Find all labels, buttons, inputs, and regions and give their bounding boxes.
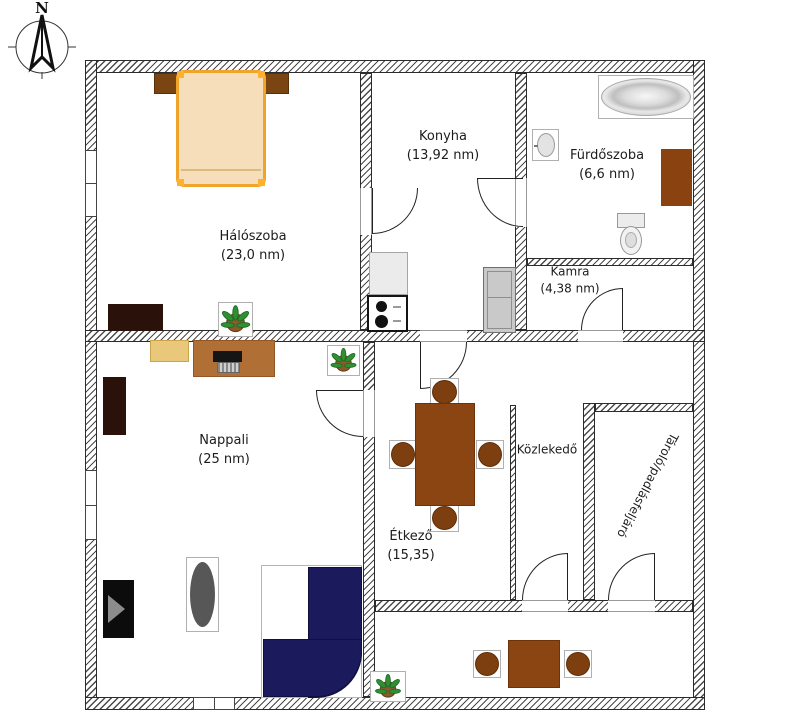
terrace-table: [508, 640, 560, 688]
wall-corridor-left: [510, 405, 516, 600]
dining-chair: [430, 378, 459, 406]
window-bedroom: [85, 150, 97, 217]
opening-bedroom-kitchen: [360, 188, 372, 235]
room-label-bathroom: Fürdőszoba (6,6 nm): [570, 147, 644, 185]
window-livingroom: [85, 470, 97, 540]
room-label-corridor: Közlekedő: [517, 441, 578, 458]
wall-storage-top: [595, 403, 693, 412]
bedroom-rug: [108, 304, 163, 331]
opening-living-dining: [363, 390, 375, 437]
door-living-dining: [316, 390, 363, 437]
bathroom-cabinet: [661, 149, 692, 206]
wall-corridor-storage: [583, 403, 595, 600]
terrace-chair: [564, 650, 592, 678]
bathtub: [598, 75, 694, 119]
room-label-bedroom: Hálószoba (23,0 nm): [219, 228, 286, 266]
bed: [176, 70, 266, 187]
room-label-livingroom: Nappali (25 nm): [198, 432, 250, 470]
opening-corridor-terrace: [522, 600, 568, 612]
window-livingroom-south: [193, 697, 235, 710]
opening-pantry: [578, 330, 623, 342]
opening-storage-terrace: [608, 600, 655, 612]
dining-chair: [476, 440, 504, 469]
tv: [103, 580, 134, 638]
wall-outer-right: [693, 60, 705, 710]
dining-table: [415, 403, 475, 506]
door-kitchen-bathroom: [477, 178, 523, 227]
potted-plant-icon: [370, 671, 406, 702]
compass-n-label: N: [35, 0, 49, 17]
door-bedroom-kitchen: [372, 188, 418, 234]
stove: [367, 295, 408, 332]
room-label-storage: Tároló/padlásfeljáró: [612, 429, 682, 540]
terrace-chair: [473, 650, 501, 678]
door-storage-terrace: [608, 553, 655, 600]
door-corridor-terrace: [522, 553, 568, 600]
opening-kitchen-dining: [420, 330, 467, 342]
compass-icon: N: [4, 0, 82, 84]
sink: [532, 129, 559, 161]
toilet: [616, 213, 644, 259]
storage-cabinet: [103, 377, 126, 435]
nightstand-right: [262, 73, 289, 94]
room-label-pantry: Kamra (4,38 nm): [540, 264, 599, 299]
corner-sofa: [261, 565, 362, 698]
sideboard: [193, 340, 275, 377]
coffee-table: [186, 557, 219, 632]
fridge: [483, 267, 516, 333]
kitchen-counter: [369, 252, 408, 295]
potted-plant-icon: [327, 345, 360, 376]
dining-chair: [389, 440, 417, 469]
room-label-dining: Étkező (15,35): [387, 528, 434, 566]
room-label-kitchen: Konyha (13,92 nm): [407, 128, 479, 166]
floor-plan: N: [0, 0, 800, 726]
desk: [150, 340, 189, 362]
potted-plant-icon: [218, 302, 253, 337]
